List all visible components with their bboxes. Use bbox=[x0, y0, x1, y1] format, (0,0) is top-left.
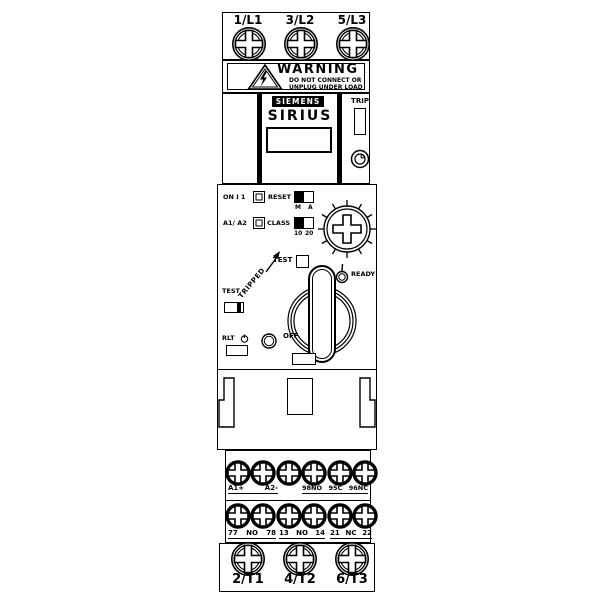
terminal-row-divider bbox=[225, 500, 371, 501]
screw-terminal-icon bbox=[225, 460, 251, 486]
terminal-label: A1+ bbox=[228, 485, 244, 492]
trip-indicator-slider bbox=[354, 108, 366, 135]
terminal-group-aux-relay: 98NO 95C 96NC bbox=[302, 485, 368, 494]
terminal-group-13-14: 13 NO 14 bbox=[279, 530, 325, 539]
terminal-label: 14 bbox=[315, 530, 325, 537]
class-10-label: 10 bbox=[294, 231, 302, 237]
screw-terminal-icon bbox=[231, 26, 267, 62]
warning-text-line2: UNPLUG UNDER LOAD bbox=[289, 85, 363, 91]
screw-terminal-icon bbox=[276, 503, 302, 529]
screw-terminal-icon bbox=[250, 460, 276, 486]
screw-terminal-icon bbox=[301, 503, 327, 529]
terminal-label-2T1: 2/T1 bbox=[228, 573, 268, 586]
on-led-label: ON I 1 bbox=[223, 194, 245, 201]
terminal-label: 98NO bbox=[302, 485, 322, 492]
terminal-label-5L3: 5/L3 bbox=[334, 14, 370, 26]
terminal-label: 95C bbox=[328, 485, 342, 492]
terminal-label: 96NC bbox=[349, 485, 368, 492]
terminal-label-4T2: 4/T2 bbox=[280, 573, 320, 586]
class-switch[interactable] bbox=[294, 217, 314, 229]
reset-mode-switch[interactable] bbox=[294, 191, 314, 203]
test-slide-switch[interactable] bbox=[224, 302, 244, 313]
off-position-label: OFF bbox=[283, 333, 299, 340]
reset-mode-a-label: A bbox=[308, 205, 313, 211]
terminal-label: NO bbox=[296, 530, 308, 537]
screw-terminal-icon bbox=[225, 503, 251, 529]
terminal-label-1L1: 1/L1 bbox=[230, 14, 266, 26]
reset-mode-m-label: M bbox=[295, 205, 301, 211]
screw-terminal-icon bbox=[283, 26, 319, 62]
warning-title: WARNING bbox=[277, 63, 359, 76]
terminal-label: NO bbox=[246, 530, 258, 537]
rlt-button[interactable] bbox=[226, 345, 248, 356]
trip-label: TRIP bbox=[346, 98, 374, 105]
screw-terminal-icon bbox=[327, 460, 353, 486]
reset-switch-label: RESET bbox=[268, 194, 291, 201]
screw-terminal-icon bbox=[352, 460, 378, 486]
screw-terminal-icon bbox=[301, 460, 327, 486]
rlt-label: RLT bbox=[222, 335, 235, 342]
switch-knob bbox=[237, 303, 241, 312]
terminal-label: A2- bbox=[265, 485, 278, 492]
class-20-label: 20 bbox=[305, 231, 313, 237]
siemens-logo: SIEMENS bbox=[272, 96, 324, 107]
section-divider bbox=[217, 369, 377, 370]
screw-terminal-icon bbox=[250, 503, 276, 529]
round-button[interactable] bbox=[261, 333, 277, 349]
rating-label-window bbox=[266, 127, 332, 153]
terminal-group-a1a2: A1+ A2- bbox=[228, 485, 278, 494]
terminal-label: 13 bbox=[279, 530, 289, 537]
reset-button[interactable] bbox=[350, 149, 370, 169]
terminal-label: 22 bbox=[362, 530, 372, 537]
knob-lock-slot bbox=[292, 353, 316, 365]
terminal-label: 78 bbox=[266, 530, 276, 537]
switch-knob bbox=[295, 192, 304, 202]
on-led-indicator bbox=[253, 191, 265, 203]
terminal-label: 21 bbox=[330, 530, 340, 537]
terminal-group-77-78: 77 NO 78 bbox=[228, 530, 276, 539]
screw-terminal-icon bbox=[335, 26, 371, 62]
screw-terminal-icon bbox=[276, 460, 302, 486]
switch-knob bbox=[295, 218, 304, 228]
current-adjustment-dial[interactable] bbox=[314, 196, 380, 262]
power-symbol-icon bbox=[240, 334, 249, 343]
din-rail-slot bbox=[287, 378, 313, 415]
screw-terminal-icon bbox=[352, 503, 378, 529]
terminal-group-21-22: 21 NC 22 bbox=[330, 530, 372, 539]
terminal-label-3L2: 3/L2 bbox=[282, 14, 318, 26]
terminal-label-6T3: 6/T3 bbox=[332, 573, 372, 586]
relay-front-drawing: 1/L1 3/L2 5/L3 WARNING DO NOT CONNECT OR… bbox=[0, 0, 600, 600]
a1a2-led-indicator bbox=[253, 217, 265, 229]
a1a2-led-label: A1/ A2 bbox=[223, 220, 247, 227]
mounting-clip-right bbox=[358, 378, 376, 428]
panel-divider-bar bbox=[257, 94, 262, 183]
terminal-label: 77 bbox=[228, 530, 238, 537]
test-slide-label: TEST bbox=[222, 288, 240, 295]
mounting-clip-left bbox=[218, 378, 236, 428]
panel-divider-bar bbox=[337, 94, 342, 183]
product-name: SIRIUS bbox=[263, 109, 337, 123]
rotary-selector-knob[interactable] bbox=[277, 264, 367, 366]
class-switch-label: CLASS bbox=[267, 220, 290, 227]
screw-terminal-icon bbox=[327, 503, 353, 529]
terminal-label: NC bbox=[346, 530, 357, 537]
